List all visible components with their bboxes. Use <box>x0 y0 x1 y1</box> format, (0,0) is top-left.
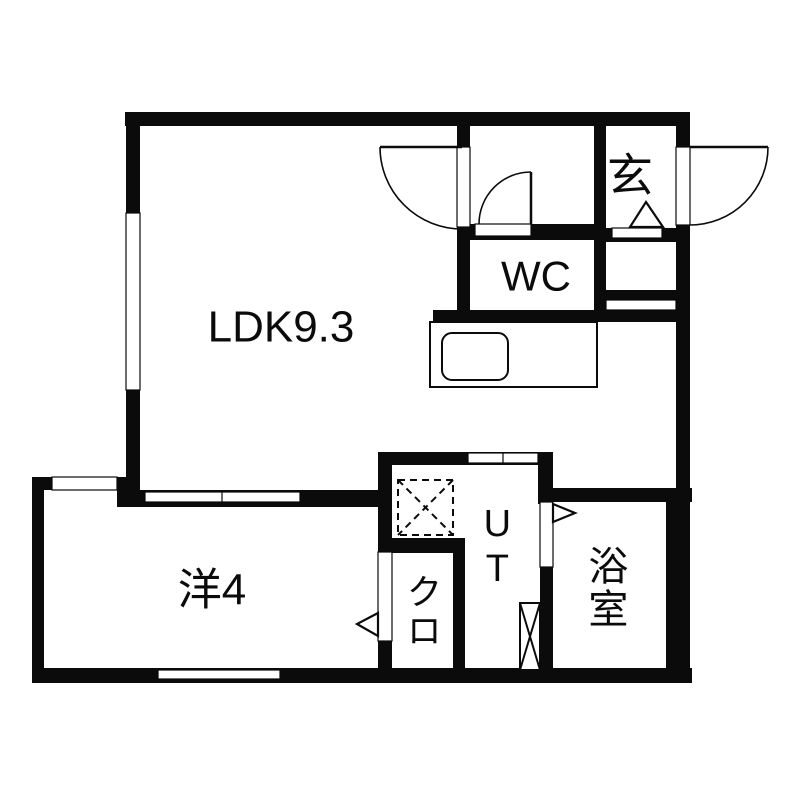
room-label-closet: クロ <box>403 573 440 651</box>
entrance-door-swing-arc <box>690 147 768 225</box>
room-label-utility: UT <box>478 503 517 593</box>
bath-door-swing-mark <box>553 504 575 522</box>
wall-bath-east-lining <box>666 502 678 670</box>
ldk-door-swing-arc <box>380 147 462 229</box>
wall-bottom-exterior <box>32 668 692 683</box>
wall-closet-east-wall <box>453 540 465 668</box>
bath-door-opening <box>540 502 553 567</box>
room-label-bathroom: 浴室 <box>584 545 625 631</box>
jog-window <box>52 477 117 490</box>
yoshitsu-south-window <box>158 670 280 679</box>
genkan-step-notch <box>612 228 662 238</box>
ldk-west-window <box>126 213 140 390</box>
room-label-western-room: 洋4 <box>178 569 246 614</box>
closet-door-opening <box>378 552 392 641</box>
wall-genkan-wc-east-divider <box>594 112 606 322</box>
floorplan-canvas: LDK9.3玄WCUT浴室クロ洋4 <box>0 0 800 800</box>
entrance-door-opening <box>676 147 690 225</box>
room-label-wc: WC <box>501 256 571 299</box>
room-label-ldk: LDK9.3 <box>208 306 355 351</box>
wall-corridor-south-band <box>606 290 676 300</box>
entrance-step-mark <box>630 202 663 227</box>
wall-closet-north-wall <box>378 538 465 553</box>
wc-door-swing-arc <box>479 172 531 224</box>
room-label-genkan: 玄 <box>607 153 653 200</box>
wall-bath-north-wall <box>538 488 692 502</box>
wall-left-exterior-lower <box>32 477 44 683</box>
corridor-door-slot <box>606 300 676 310</box>
ldk-hall-door-opening <box>457 147 470 227</box>
wall-kitchen-back-wall <box>433 310 676 322</box>
kitchen-sink <box>442 333 508 380</box>
floorplan-drawing <box>0 0 800 800</box>
wc-door-opening <box>475 224 531 236</box>
closet-door-swing-mark <box>357 613 378 636</box>
